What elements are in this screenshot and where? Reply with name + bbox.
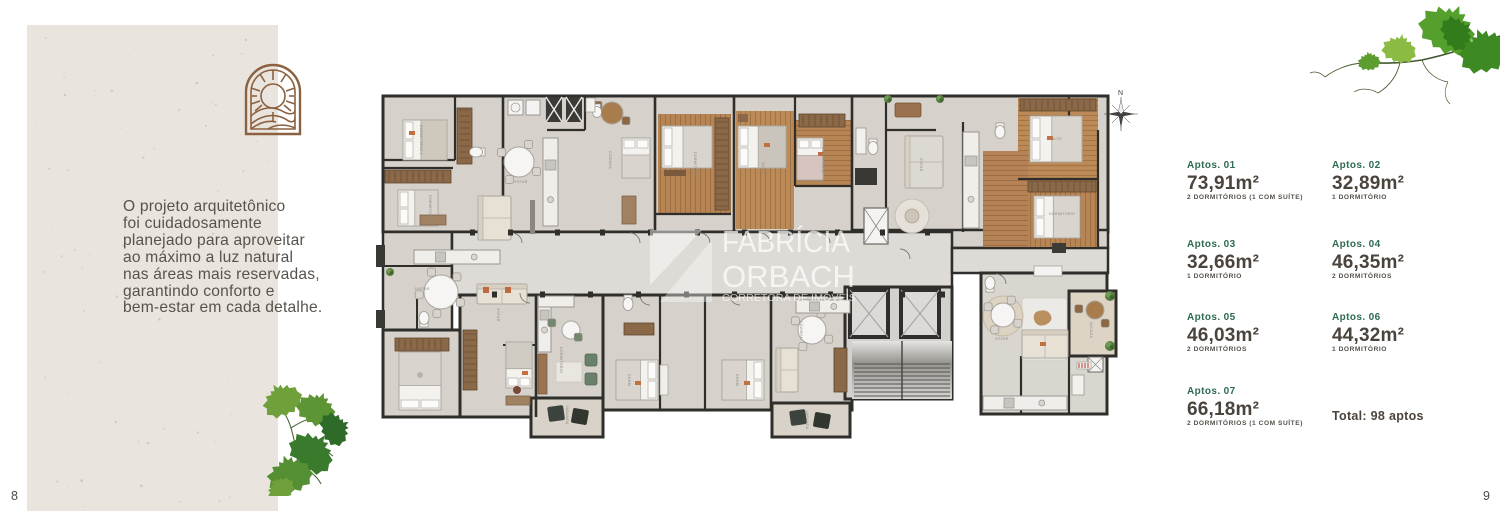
svg-text:DORMITORIO: DORMITORIO [693, 152, 697, 178]
svg-text:ESTAR: ESTAR [496, 308, 500, 321]
svg-text:FABRÍCIA: FABRÍCIA [722, 224, 850, 259]
svg-text:SACADA: SACADA [1089, 322, 1093, 339]
svg-text:ESTAR: ESTAR [919, 158, 923, 171]
svg-text:SUITE: SUITE [761, 162, 765, 174]
svg-text:ESTAR: ESTAR [995, 337, 1008, 341]
svg-text:DORMITORIO: DORMITORIO [559, 347, 563, 373]
svg-text:COZINHA: COZINHA [799, 321, 803, 340]
svg-text:CORRETORA DE IMÓVEIS: CORRETORA DE IMÓVEIS [722, 291, 856, 304]
svg-text:DORMITORIO 2: DORMITORIO 2 [428, 195, 432, 225]
svg-text:JANTAR: JANTAR [414, 287, 430, 291]
svg-text:COZINHA: COZINHA [608, 151, 612, 170]
svg-text:VARANDA: VARANDA [565, 405, 569, 425]
svg-text:N: N [1118, 90, 1123, 97]
svg-text:ORBACH: ORBACH [722, 259, 855, 294]
svg-text:DORM: DORM [627, 374, 631, 386]
svg-text:DORMITORIO: DORMITORIO [821, 147, 825, 173]
svg-text:VARANDA: VARANDA [805, 410, 809, 430]
svg-text:DORMITORIO: DORMITORIO [1049, 212, 1075, 216]
svg-text:ESTAR: ESTAR [514, 180, 527, 184]
svg-text:DORMITORIO 1: DORMITORIO 1 [419, 125, 423, 155]
svg-text:DORM: DORM [735, 374, 739, 386]
svg-text:SUITE: SUITE [1050, 137, 1062, 141]
